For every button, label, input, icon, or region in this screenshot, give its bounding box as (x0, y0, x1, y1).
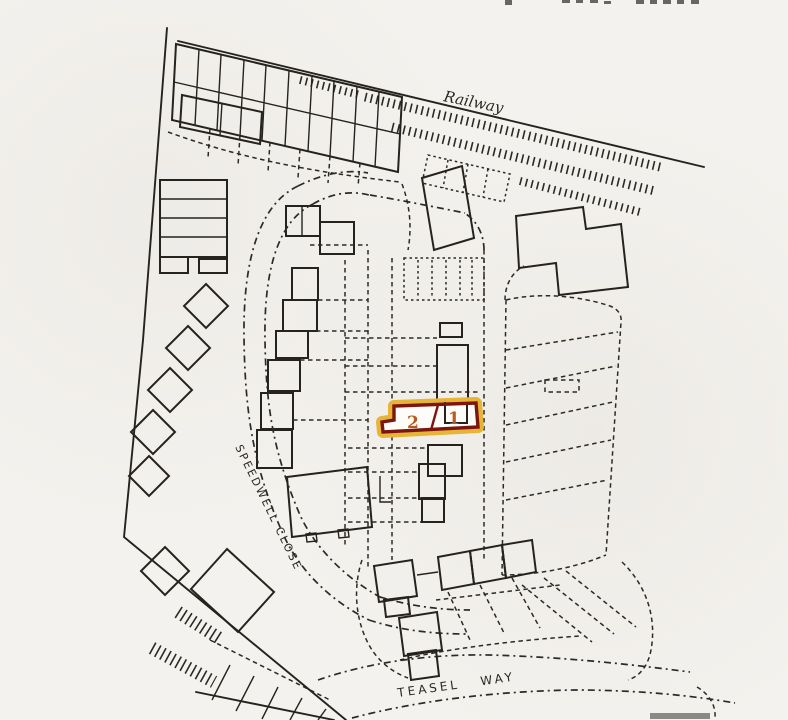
plot-number-2: 2 (407, 413, 419, 433)
speedwell-close-label: SPEEDWELL CLOSE (232, 443, 304, 573)
teasel-way-label: TEASEL WAY (395, 670, 515, 701)
parking-court (404, 258, 484, 300)
building-southwest (191, 549, 274, 632)
site-plan-map: Railway (0, 0, 788, 720)
road-teasel-way: TEASEL WAY (318, 655, 735, 718)
building-above-plot (437, 323, 468, 403)
site-plan-page: Railway (0, 0, 788, 720)
garage-strips-southwest (152, 612, 222, 682)
central-housing-chain (257, 206, 354, 468)
railway: Railway (178, 41, 704, 212)
cropped-text-fragment (505, 0, 699, 5)
plot-number-1: 1 (448, 409, 460, 429)
highlight-plot: 2 1 (382, 403, 478, 433)
railway-line (178, 41, 704, 167)
site-boundary-line (124, 28, 346, 720)
terrace-row-north (168, 44, 410, 250)
houses-west (129, 180, 228, 595)
allotment-plots (502, 266, 621, 575)
building-north-east (516, 207, 628, 295)
building-north-middle (422, 166, 474, 250)
community-hall (287, 467, 372, 542)
terrace-annex-wall (220, 103, 222, 135)
scale-bar-fragment (650, 713, 710, 719)
